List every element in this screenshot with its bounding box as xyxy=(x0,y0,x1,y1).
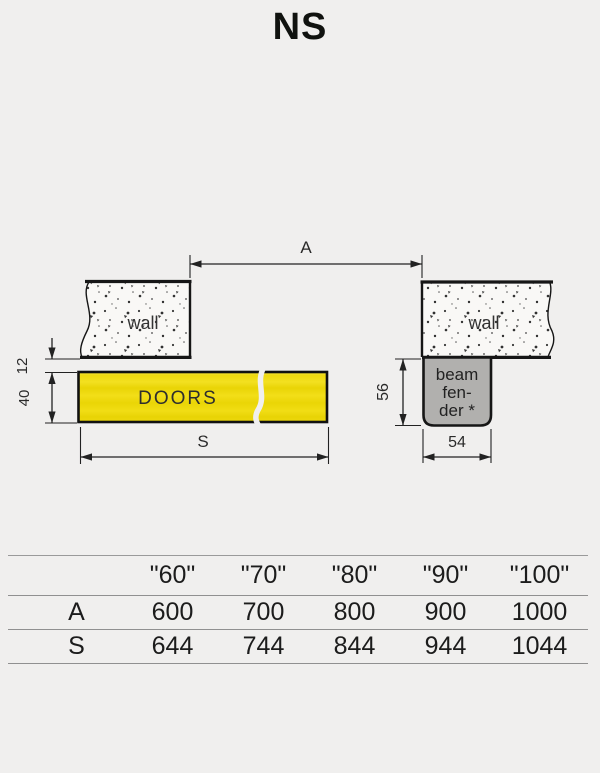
left-wall-label: wall xyxy=(126,313,158,333)
dim-40-label: 40 xyxy=(16,390,33,407)
dimension-12-40: 12 40 xyxy=(14,338,80,423)
diagram-svg: wall wall DOORS beam fen- xyxy=(0,230,600,475)
row-label-a: A xyxy=(8,596,127,630)
doors-bar: DOORS xyxy=(79,367,328,429)
dim-12-label: 12 xyxy=(14,358,31,375)
row-label-s: S xyxy=(8,630,127,664)
cell-s-100: 1044 xyxy=(491,630,588,664)
technical-diagram: wall wall DOORS beam fen- xyxy=(0,230,600,475)
size-table-grid: "60" "70" "80" "90" "100" A 600 700 800 … xyxy=(8,555,588,664)
dimension-s: S xyxy=(81,427,329,464)
dimension-a: A xyxy=(190,238,422,278)
dimension-54: 54 xyxy=(423,429,491,463)
beam-fender-label-line3: der * xyxy=(439,401,475,420)
cell-s-80: 844 xyxy=(309,630,400,664)
table-row-s: S 644 744 844 944 1044 xyxy=(8,630,588,664)
col-header-80: "80" xyxy=(309,556,400,596)
table-header-row: "60" "70" "80" "90" "100" xyxy=(8,556,588,596)
dim-a-label: A xyxy=(300,238,312,257)
doors-label: DOORS xyxy=(138,388,218,409)
beam-fender-label-line2: fen- xyxy=(442,383,471,402)
col-header-60: "60" xyxy=(127,556,218,596)
table-row-a: A 600 700 800 900 1000 xyxy=(8,596,588,630)
page-title: NS xyxy=(0,6,600,49)
cell-a-60: 600 xyxy=(127,596,218,630)
dim-56-label: 56 xyxy=(375,383,392,401)
cell-a-100: 1000 xyxy=(491,596,588,630)
cell-a-70: 700 xyxy=(218,596,309,630)
cell-a-80: 800 xyxy=(309,596,400,630)
right-wall: wall xyxy=(421,282,554,357)
cell-s-90: 944 xyxy=(400,630,491,664)
page: NS xyxy=(0,0,600,773)
col-header-90: "90" xyxy=(400,556,491,596)
cell-s-60: 644 xyxy=(127,630,218,664)
size-table: "60" "70" "80" "90" "100" A 600 700 800 … xyxy=(8,555,588,664)
cell-a-90: 900 xyxy=(400,596,491,630)
dimension-56: 56 xyxy=(375,359,421,426)
beam-fender: beam fen- der * xyxy=(424,358,492,426)
col-header-70: "70" xyxy=(218,556,309,596)
col-header-100: "100" xyxy=(491,556,588,596)
cell-s-70: 744 xyxy=(218,630,309,664)
left-wall: wall xyxy=(80,281,192,357)
dim-s-label: S xyxy=(197,432,208,451)
dim-54-label: 54 xyxy=(448,434,466,451)
right-wall-label: wall xyxy=(467,313,499,333)
beam-fender-label-line1: beam xyxy=(436,365,479,384)
table-corner-cell xyxy=(8,556,127,596)
